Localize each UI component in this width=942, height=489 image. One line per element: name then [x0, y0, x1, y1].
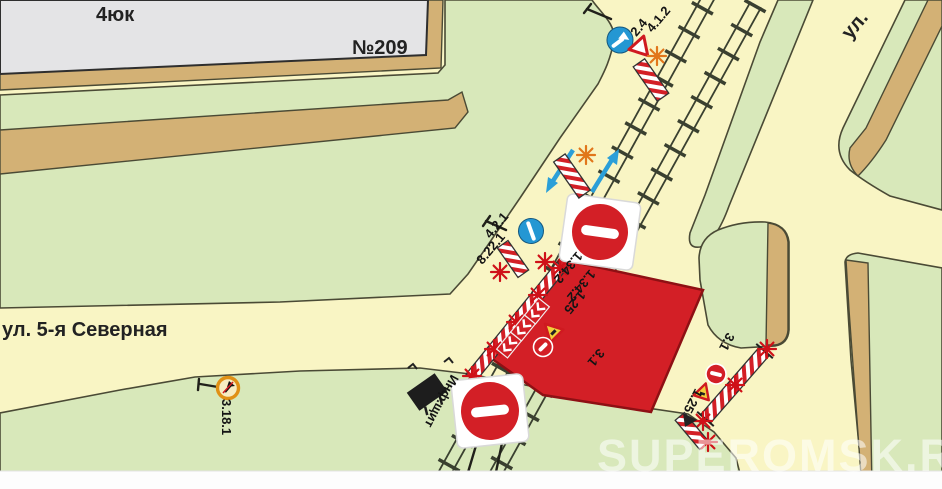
- sign-code-no-turn: 3.18.1: [220, 399, 233, 435]
- street-label-left: ул. 5-я Северная: [2, 320, 168, 340]
- map-canvas: [0, 0, 942, 489]
- building-label: 4юк: [96, 5, 134, 25]
- traffic-scheme-map: 4юк №209 ул. ул. 5-я Северная 2.4 4.1.2 …: [0, 0, 942, 489]
- building-number: №209: [352, 38, 408, 58]
- island-sidewalk-band: [766, 223, 788, 345]
- watermark: SUPEROMSK.RU: [597, 430, 942, 482]
